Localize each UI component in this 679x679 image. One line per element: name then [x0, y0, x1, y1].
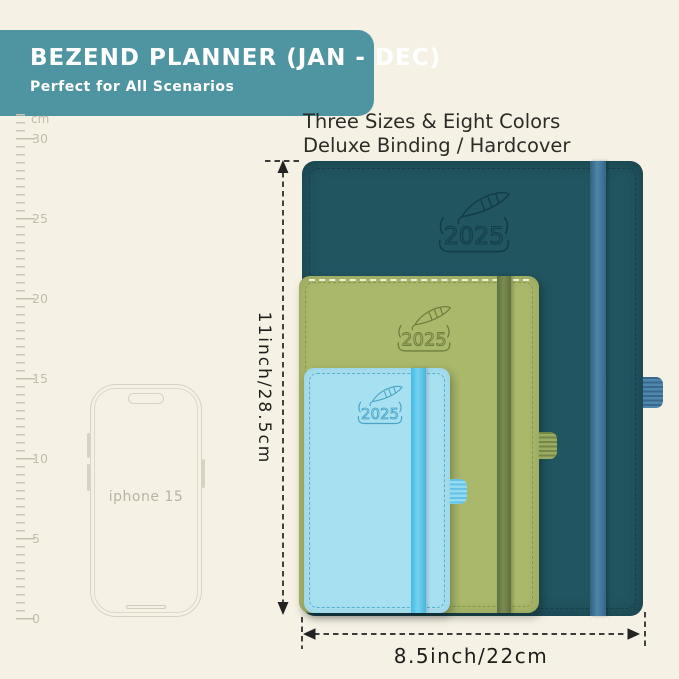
iphone-label: iphone 15 — [91, 489, 201, 505]
header-banner: BEZEND PLANNER (JAN - DEC) Perfect for A… — [0, 30, 374, 116]
ruler-label-5: 5 — [32, 531, 40, 546]
feather-icon — [412, 307, 450, 330]
ruler-label-30: 30 — [32, 131, 48, 146]
arrow-left-icon — [303, 628, 316, 640]
year-emblem: 2025 — [352, 385, 408, 426]
arrow-up-icon — [278, 160, 289, 173]
ruler-label-10: 10 — [32, 451, 48, 466]
iphone-outline: iphone 15 — [90, 384, 202, 617]
stitching-top — [309, 279, 529, 281]
arrow-down-icon — [278, 602, 289, 615]
elastic-band — [411, 368, 426, 613]
elastic-band — [497, 276, 511, 613]
planner-small: 2025 — [304, 368, 450, 613]
tagline-line1: Three Sizes & Eight Colors — [303, 110, 570, 134]
width-dimension-label: 8.5inch/22cm — [394, 644, 548, 668]
product-size-diagram: BEZEND PLANNER (JAN - DEC) Perfect for A… — [0, 0, 679, 679]
arrow-right-icon — [628, 628, 641, 640]
pen-loop — [450, 479, 467, 504]
iphone-volume-up-button — [87, 433, 90, 458]
elastic-band — [590, 161, 606, 616]
year-text: 2025 — [444, 222, 504, 250]
pen-loop — [643, 377, 663, 408]
ruler-label-25: 25 — [32, 211, 48, 226]
banner-title: BEZEND PLANNER (JAN - DEC) — [30, 45, 354, 71]
height-dimension-label: 11inch/28.5cm — [254, 312, 274, 465]
feather-icon — [370, 386, 402, 405]
tagline-line2: Deluxe Binding / Hardcover — [303, 134, 570, 158]
tagline: Three Sizes & Eight Colors Deluxe Bindin… — [303, 110, 570, 158]
dynamic-island — [128, 393, 164, 404]
ruler-label-20: 20 — [32, 291, 48, 306]
banner-subtitle: Perfect for All Scenarios — [30, 79, 354, 95]
year-emblem: 2025 — [391, 305, 457, 354]
iphone-power-button — [202, 459, 205, 488]
year-emblem: 2025 — [430, 190, 518, 256]
ruler-label-0: 0 — [32, 611, 40, 626]
iphone-home-indicator — [126, 605, 166, 609]
year-text: 2025 — [361, 405, 399, 423]
ruler-label-15: 15 — [32, 371, 48, 386]
year-text: 2025 — [401, 329, 446, 350]
feather-icon — [458, 193, 509, 224]
ruler-unit-label: cm — [31, 112, 49, 126]
pen-loop — [539, 432, 557, 459]
iphone-volume-down-button — [87, 464, 90, 491]
